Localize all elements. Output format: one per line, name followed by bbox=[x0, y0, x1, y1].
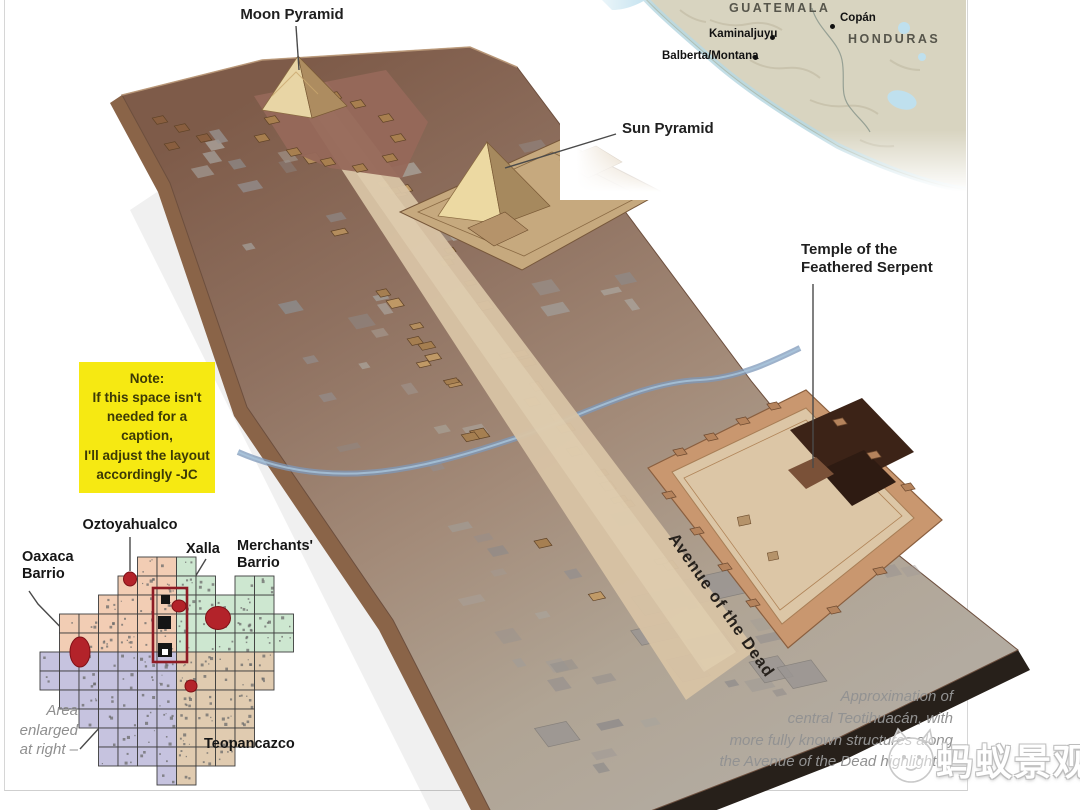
sun-pyramid-leader-line bbox=[505, 134, 616, 168]
oztoyahualco-dot bbox=[124, 572, 137, 586]
sun-pyramid-label: Sun Pyramid bbox=[622, 120, 714, 138]
area-enlarged-label: Area enlarged at right – bbox=[10, 701, 78, 760]
oaxaca-barrio-dot bbox=[70, 637, 90, 667]
oztoyahualco-label: Oztoyahualco bbox=[60, 517, 200, 534]
teopancazco-dot bbox=[185, 680, 197, 692]
oaxaca-barrio-label: Oaxaca Barrio bbox=[22, 549, 74, 583]
merchants-barrio-label: Merchants' Barrio bbox=[237, 538, 313, 572]
teopancazco-label: Teopancazco bbox=[204, 736, 295, 753]
xalla-dot bbox=[172, 600, 186, 612]
xalla-label: Xalla bbox=[186, 541, 220, 558]
merchants-barrio-dot bbox=[206, 607, 231, 630]
watermark: 蚂蚁景观 bbox=[878, 724, 1078, 802]
watermark-logo-icon bbox=[878, 724, 938, 794]
watermark-text: 蚂蚁景观 bbox=[936, 732, 1080, 786]
infographic-canvas: Avenue of the Dead bbox=[0, 0, 1080, 810]
temple-label: Temple of the Feathered Serpent bbox=[801, 241, 933, 277]
city-grid-map bbox=[0, 0, 340, 810]
